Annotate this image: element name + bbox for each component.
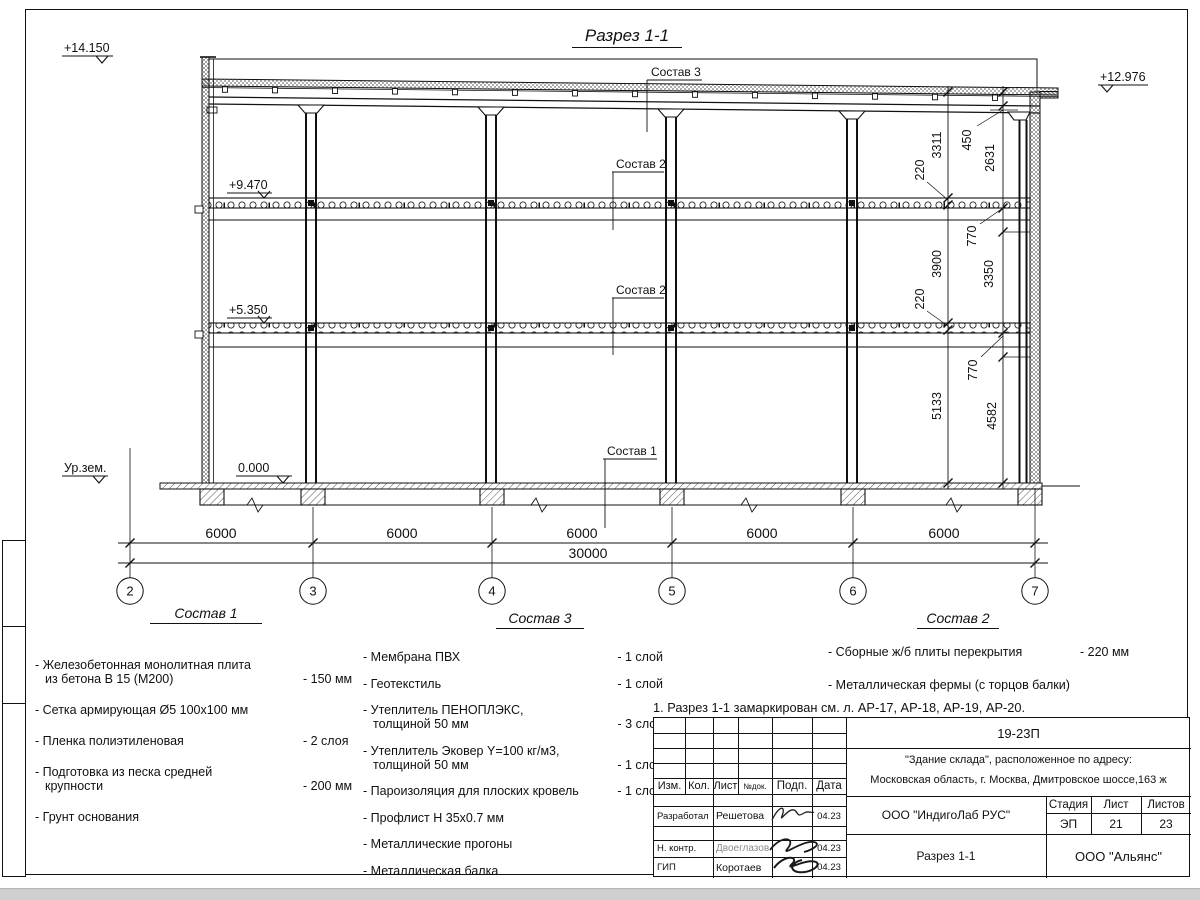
legend-item-value: - 1 слой (609, 677, 663, 691)
axis-7: 7 (1031, 584, 1038, 599)
legend-item-name: - Металлическая балка (363, 864, 615, 878)
stamp-org: ООО "Альянс" (1046, 834, 1191, 878)
elevation-slab-lower: +5.350 (229, 303, 268, 317)
axis-2: 2 (126, 584, 133, 599)
dim-total: 30000 (569, 545, 608, 561)
dim-770-upper: 770 (965, 226, 979, 247)
legend-item-value: - 1 слой (609, 650, 663, 664)
section-title-text: Разрез 1-1 (585, 26, 669, 45)
dim-bay-5: 6000 (928, 525, 959, 541)
legend-comp3-title: Состав 3 (496, 610, 584, 629)
stamp-col-kol: Кол. (685, 778, 713, 794)
legend-item-name: - Подготовка из песка средней крупности (35, 765, 295, 793)
legend-item-name: - Металлическая фермы (с торцов балки) (828, 678, 1072, 692)
legend-item-name: - Металлические прогоны (363, 837, 615, 851)
stamp-name-developer: Решетова (716, 806, 771, 826)
stamp-company: ООО "ИндигоЛаб РУС" (846, 796, 1046, 834)
legend-comp3: - Мембрана ПВХ- 1 слой - Геотекстиль- 1 … (363, 650, 663, 878)
stamp-object-line2: Московская область, г. Москва, Дмитровск… (846, 768, 1191, 792)
floor-slabs (209, 198, 1030, 347)
margin-box-2 (2, 626, 26, 704)
dim-3900: 3900 (930, 250, 944, 278)
stamp-line (654, 794, 846, 795)
right-wall (1030, 92, 1040, 483)
stamp-line (654, 748, 846, 749)
axis-bubbles: 2 3 4 5 6 7 (117, 578, 1048, 604)
elevation-roof-right: +12.976 (1100, 70, 1146, 84)
legend-item: - Сборные ж/б плиты перекрытия- 220 мм (828, 645, 1138, 659)
callout-slab-upper: Состав 2 (616, 157, 666, 171)
stamp-sheets-value: 23 (1141, 813, 1191, 834)
signature-developer (766, 798, 816, 830)
signature-ncontrol-gip (762, 832, 824, 878)
legend-item-name: - Утеплитель ПЕНОПЛЭКС, толщиной 50 мм (363, 703, 610, 731)
stamp-date-developer: 04.23 (812, 808, 846, 824)
stamp-line (654, 733, 846, 734)
stamp-col-list: Лист (713, 778, 738, 794)
dim-bay-4: 6000 (746, 525, 777, 541)
title-block: Изм. Кол. Лист №док. Подп. Дата Разработ… (653, 717, 1190, 877)
callout-roof: Состав 3 (651, 65, 701, 79)
section-title: Разрез 1-1 (572, 26, 682, 48)
legend-item: - Сетка армирующая Ø5 100x100 мм (35, 703, 365, 717)
legend-comp1-title: Состав 1 (150, 605, 262, 624)
legend-item-value: - 150 мм (295, 672, 352, 686)
dim-5133: 5133 (930, 392, 944, 420)
stamp-drawing-name: Разрез 1-1 (846, 834, 1046, 878)
dim-4582: 4582 (985, 402, 999, 430)
legend-item-name: - Профлист Н 35х0.7 мм (363, 811, 615, 825)
stamp-sheets-label: Листов (1141, 796, 1191, 813)
column-caps (298, 105, 1030, 120)
legend-item: - Пленка полиэтиленовая- 2 слоя (35, 734, 365, 748)
legend-item: - Металлическая балка (363, 864, 663, 878)
stamp-stage-value: ЭП (1046, 813, 1091, 834)
legend-item-name: - Геотекстиль (363, 677, 609, 691)
elevation-ground-label: Ур.зем. (64, 461, 106, 475)
axis-4: 4 (488, 584, 495, 599)
stamp-col-izm: Изм. (654, 778, 685, 794)
stamp-col-podp: Подп. (772, 778, 812, 794)
ground-floor (160, 483, 1080, 512)
legend-comp2-title: Состав 2 (917, 610, 999, 629)
legend-item: - Металлическая фермы (с торцов балки) (828, 678, 1138, 692)
legend-item: - Пароизоляция для плоских кровель- 1 сл… (363, 784, 663, 798)
elevation-floor: 0.000 (238, 461, 269, 475)
legend-item: - Железобетонная монолитная плита из бет… (35, 658, 365, 686)
roof-assembly (202, 79, 1058, 113)
legend-item-name: - Пленка полиэтиленовая (35, 734, 295, 748)
margin-box-3 (2, 703, 26, 877)
legend-item: - Подготовка из песка средней крупности-… (35, 765, 365, 793)
drawing-sheet-canvas: Разрез 1-1 (0, 0, 1200, 900)
dim-770-lower: 770 (966, 360, 980, 381)
legend-item-value: - 200 мм (295, 779, 352, 793)
dim-450: 450 (960, 130, 974, 151)
stamp-role-ncontrol: Н. контр. (657, 840, 712, 857)
legend-comp1: - Железобетонная монолитная плита из бет… (35, 658, 365, 824)
dim-220-upper: 220 (913, 160, 927, 181)
axis-3: 3 (309, 584, 316, 599)
stamp-col-data: Дата (812, 778, 846, 794)
right-dimension-chains: 3311 220 3900 220 5133 450 2631 770 3350… (913, 86, 1030, 489)
dim-2631: 2631 (983, 144, 997, 172)
left-wall (195, 57, 216, 483)
stamp-sheet-value: 21 (1091, 813, 1141, 834)
dim-220-lower: 220 (913, 289, 927, 310)
axis-6: 6 (849, 584, 856, 599)
stamp-doc-code: 19-23П (846, 718, 1191, 748)
axis-5: 5 (668, 584, 675, 599)
sheet-bottom-edge (0, 888, 1200, 900)
stamp-stage-label: Стадия (1046, 796, 1091, 813)
stamp-line (654, 826, 846, 827)
dim-bay-3: 6000 (566, 525, 597, 541)
legend-item: - Профлист Н 35х0.7 мм (363, 811, 663, 825)
legend-item-name: - Пароизоляция для плоских кровель (363, 784, 609, 798)
stamp-role-gip: ГИП (657, 857, 712, 878)
stamp-col-ndok: №док. (738, 778, 772, 794)
stamp-role-developer: Разработал (657, 806, 712, 826)
dim-3311: 3311 (930, 132, 944, 159)
dim-3350: 3350 (982, 260, 996, 288)
stamp-line (713, 718, 714, 878)
legend-item: - Металлические прогоны (363, 837, 663, 851)
legend-item: - Грунт основания (35, 810, 365, 824)
legend-item-name: - Утеплитель Эковер Y=100 кг/м3, толщино… (363, 744, 609, 772)
elevation-slab-upper: +9.470 (229, 178, 268, 192)
callout-slab-lower: Состав 2 (616, 283, 666, 297)
legend-item-name: - Сборные ж/б плиты перекрытия (828, 645, 1072, 659)
dim-bay-2: 6000 (386, 525, 417, 541)
legend-item: - Утеплитель Эковер Y=100 кг/м3, толщино… (363, 744, 663, 772)
dim-bay-1: 6000 (205, 525, 236, 541)
legend-comp2: - Сборные ж/б плиты перекрытия- 220 мм -… (828, 645, 1138, 692)
stamp-line (654, 763, 846, 764)
section-drawing: Разрез 1-1 (0, 0, 1200, 620)
legend-item: - Геотекстиль- 1 слой (363, 677, 663, 691)
legend-item-name: - Сетка армирующая Ø5 100x100 мм (35, 703, 295, 717)
composition-callouts: Состав 3 Состав 2 Состав 2 Состав 1 (603, 65, 702, 528)
legend-item-name: - Грунт основания (35, 810, 295, 824)
legend-item: - Утеплитель ПЕНОПЛЭКС, толщиной 50 мм- … (363, 703, 663, 731)
legend-item-value: - 2 слоя (295, 734, 348, 748)
legend-item-name: - Железобетонная монолитная плита из бет… (35, 658, 295, 686)
stamp-sheet-label: Лист (1091, 796, 1141, 813)
legend-item-value: - 220 мм (1072, 645, 1129, 659)
legend-item: - Мембрана ПВХ- 1 слой (363, 650, 663, 664)
drawing-note: 1. Разрез 1-1 замаркирован см. л. АР-17,… (653, 700, 1173, 715)
legend-item-name: - Мембрана ПВХ (363, 650, 609, 664)
callout-floor: Состав 1 (607, 444, 657, 458)
elevation-parapet-left: +14.150 (64, 41, 110, 55)
